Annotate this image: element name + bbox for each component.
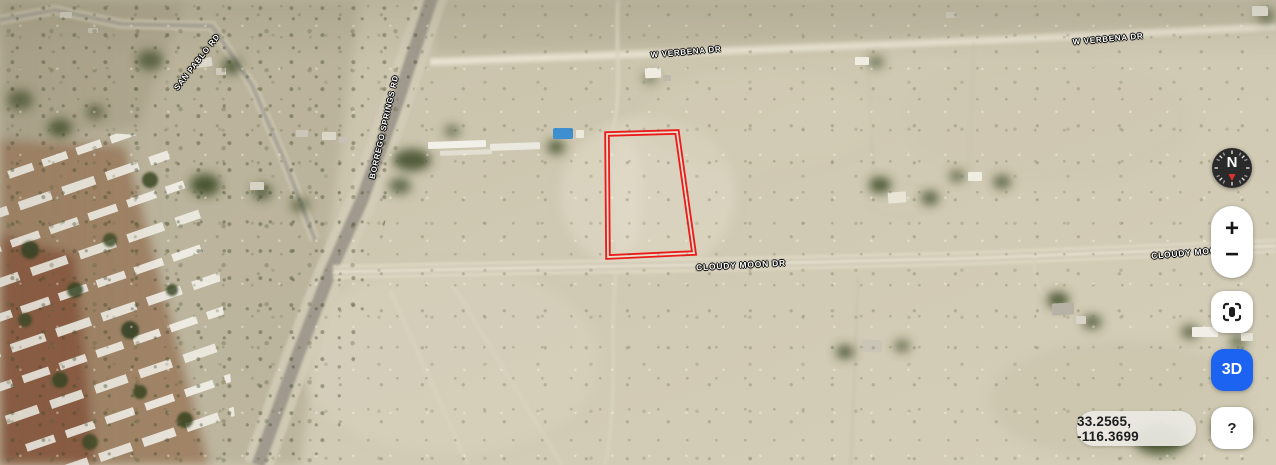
zoom-out-button[interactable]: − — [1211, 242, 1253, 268]
south-needle-icon — [1229, 174, 1236, 181]
help-button[interactable]: ? — [1211, 407, 1253, 449]
coordinates-readout: 33.2565, -116.3699 — [1077, 411, 1196, 446]
compass-control[interactable]: N — [1212, 148, 1252, 188]
compass-dial-icon — [1212, 148, 1252, 188]
zoom-in-button[interactable]: + — [1211, 216, 1253, 242]
focus-frame-icon — [1221, 301, 1243, 323]
map-viewport[interactable]: BORREGO SPRINGS RD CLOUDY MOON DR CLOUDY… — [0, 0, 1276, 465]
zoom-control: + − — [1211, 206, 1253, 278]
satellite-imagery[interactable] — [0, 0, 1276, 465]
recenter-button[interactable] — [1211, 291, 1253, 333]
coordinates-value: 33.2565, -116.3699 — [1077, 414, 1196, 444]
view-3d-toggle-button[interactable]: 3D — [1211, 349, 1253, 391]
